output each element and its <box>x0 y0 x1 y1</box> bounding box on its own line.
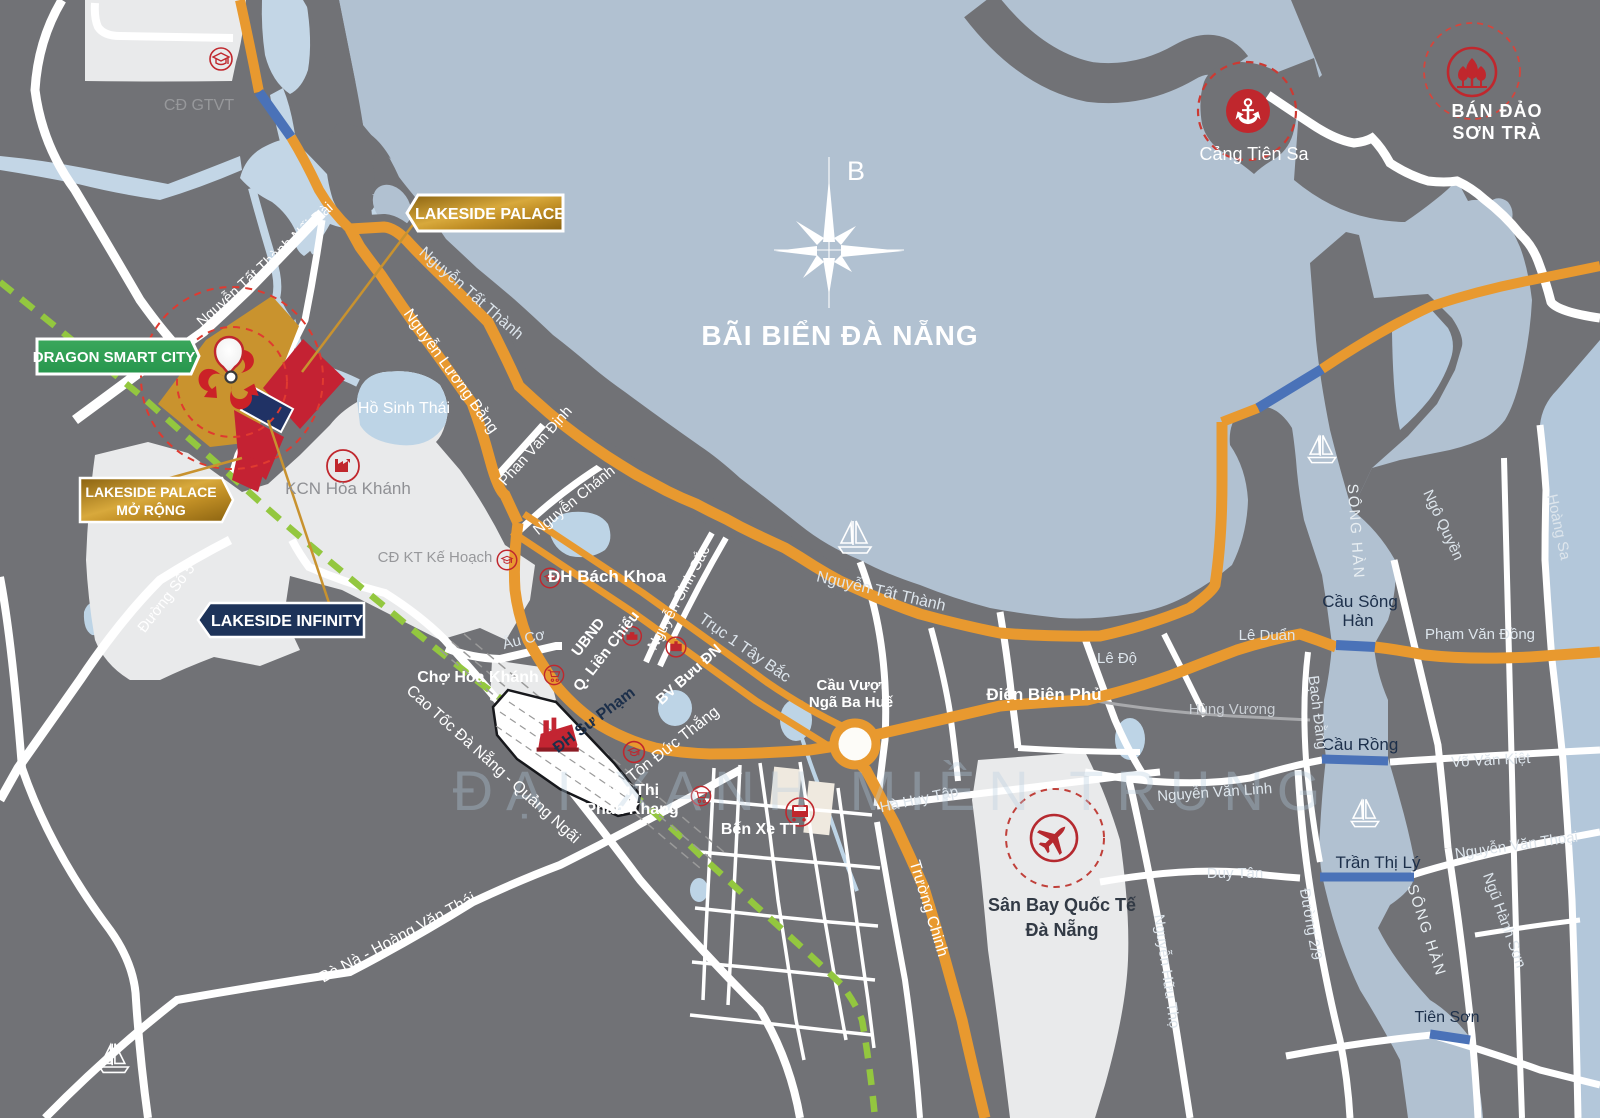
svg-text:Duy Tân: Duy Tân <box>1207 865 1263 882</box>
svg-text:Ngã Ba Huế: Ngã Ba Huế <box>809 694 894 711</box>
svg-text:ĐH Bách Khoa: ĐH Bách Khoa <box>548 567 667 586</box>
svg-text:Lê Duẩn: Lê Duẩn <box>1239 627 1296 644</box>
svg-text:Sân Bay Quốc Tế: Sân Bay Quốc Tế <box>988 895 1137 915</box>
svg-text:Bến Xe TT: Bến Xe TT <box>721 821 799 838</box>
svg-text:CĐ KT Kế Hoạch: CĐ KT Kế Hoạch <box>378 549 493 566</box>
svg-text:Tiên Sơn: Tiên Sơn <box>1414 1009 1479 1026</box>
svg-text:B: B <box>847 156 865 186</box>
svg-text:Cầu Sông: Cầu Sông <box>1322 592 1398 611</box>
svg-text:Đà Nẵng: Đà Nẵng <box>1025 918 1098 940</box>
svg-text:LAKESIDE PALACE: LAKESIDE PALACE <box>85 484 216 500</box>
svg-text:BÁN ĐẢO: BÁN ĐẢO <box>1452 100 1543 121</box>
svg-text:Cầu Vượt: Cầu Vượt <box>816 677 885 694</box>
svg-text:LAKESIDE INFINITY: LAKESIDE INFINITY <box>211 613 363 630</box>
svg-text:BÃI BIỂN ĐÀ NẴNG: BÃI BIỂN ĐÀ NẴNG <box>701 319 978 351</box>
svg-text:Điện Biên Phủ: Điện Biên Phủ <box>986 685 1101 704</box>
svg-text:Cầu Rồng: Cầu Rồng <box>1322 735 1399 754</box>
svg-text:Hồ Sinh Thái: Hồ Sinh Thái <box>358 400 450 417</box>
svg-text:Cảng Tiên Sa: Cảng Tiên Sa <box>1199 144 1309 164</box>
svg-text:Phạm Văn Đồng: Phạm Văn Đồng <box>1425 626 1535 643</box>
svg-text:KCN Hòa Khánh: KCN Hòa Khánh <box>285 479 411 498</box>
svg-text:Siêu Thị: Siêu Thị <box>597 782 659 799</box>
svg-text:Phan Khang: Phan Khang <box>585 801 678 818</box>
svg-text:CĐ GTVT: CĐ GTVT <box>164 97 234 114</box>
svg-text:Lê Độ: Lê Độ <box>1097 650 1137 667</box>
svg-text:Hàn: Hàn <box>1342 611 1373 630</box>
svg-text:Chợ Hòa Khánh: Chợ Hòa Khánh <box>417 669 539 686</box>
svg-text:MỞ RỘNG: MỞ RỘNG <box>116 501 186 518</box>
svg-text:LAKESIDE PALACE: LAKESIDE PALACE <box>415 206 565 223</box>
svg-text:SƠN TRÀ: SƠN TRÀ <box>1452 122 1541 143</box>
svg-text:DRAGON SMART CITY: DRAGON SMART CITY <box>33 349 196 366</box>
svg-text:Hùng Vương: Hùng Vương <box>1189 701 1276 718</box>
svg-text:Trần Thị Lý: Trần Thị Lý <box>1335 853 1421 872</box>
